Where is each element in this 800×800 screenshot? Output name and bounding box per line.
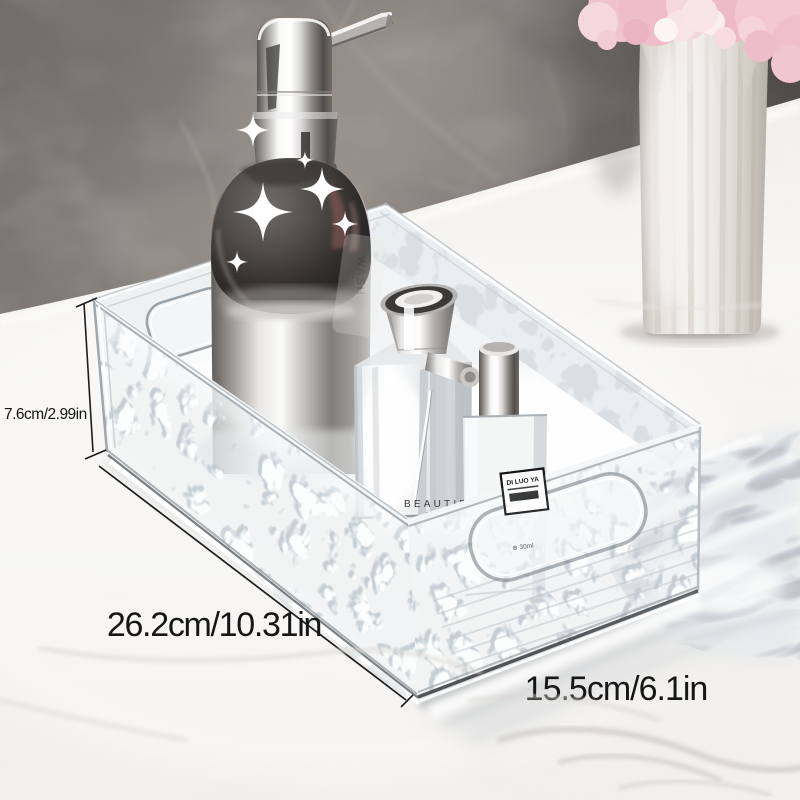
svg-text:WASH: WASH xyxy=(354,256,367,297)
svg-text:26.2cm/10.31in: 26.2cm/10.31in xyxy=(107,606,321,644)
svg-text:15.5cm/6.1in: 15.5cm/6.1in xyxy=(525,670,708,708)
svg-text:7.6cm/2.99in: 7.6cm/2.99in xyxy=(4,406,87,423)
